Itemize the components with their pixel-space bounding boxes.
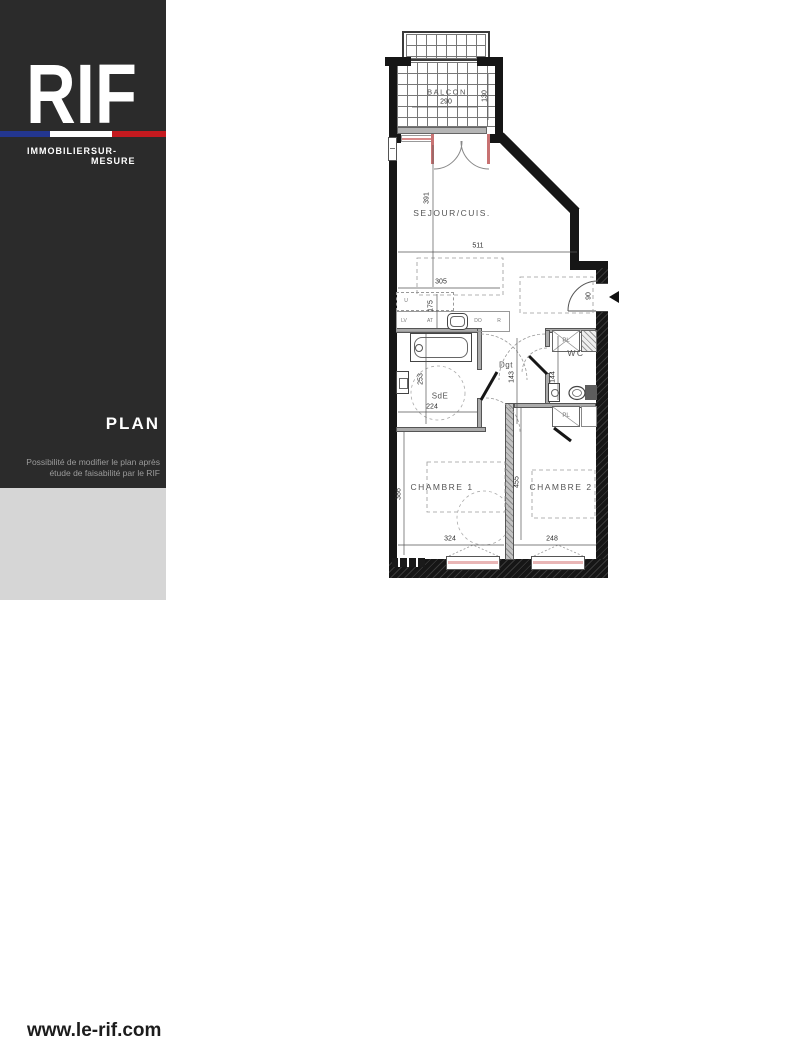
sink-basin [450, 316, 465, 327]
french-flag-stripe [0, 131, 166, 137]
door-leaf-chambre2 [554, 428, 571, 441]
flag-blue [0, 131, 50, 137]
room-label-wc: WC [567, 348, 584, 358]
dim-sde-h: 253 [418, 373, 425, 385]
sidebar: RIF IMMOBILIER SUR-MESURE PLAN Possibili… [0, 0, 166, 488]
website-url: www.le-rif.com [27, 1020, 161, 1042]
tagline-right: SUR-MESURE [91, 146, 140, 166]
flag-red [112, 131, 166, 137]
door-arc [461, 141, 489, 169]
wall-right [596, 312, 608, 578]
rif-logo: RIF [26, 52, 137, 136]
kitchen-label-0: U [404, 298, 408, 304]
dim-balcon-w: 290 [440, 99, 452, 106]
entrance-arrow-icon [609, 291, 619, 303]
window-opening-dashes [449, 545, 498, 556]
wall-diagonal [500, 136, 576, 212]
washbasin [396, 371, 409, 394]
tagline: IMMOBILIER SUR-MESURE [27, 146, 140, 166]
room-label-chambre1: CHAMBRE 1 [410, 482, 473, 492]
entrance-door-arc [568, 281, 598, 311]
room-label-balcon: BALCON [427, 88, 467, 97]
turning-circle-ch1 [457, 491, 511, 545]
room-label-sejour: SEJOUR/CUIS. [413, 208, 491, 218]
french-door-jamb [487, 134, 490, 164]
dim-sde-w: 224 [426, 404, 438, 411]
wall-dgt-wc [545, 330, 550, 347]
door-arc [434, 141, 462, 169]
wall-left [389, 130, 397, 578]
wall [389, 57, 397, 136]
dim-kitchen-d: 175 [428, 300, 435, 312]
wall [489, 134, 503, 143]
kitchen-label-4: R [497, 318, 501, 324]
tagline-left: IMMOBILIER [27, 146, 91, 166]
wall-right-upper [570, 208, 579, 266]
room-label-sde: SdE [432, 392, 449, 401]
balcony-door-sill [397, 127, 487, 134]
kitchen-sink [447, 313, 468, 330]
kitchen-label-2: AT [427, 318, 433, 324]
bathtub [410, 333, 472, 362]
furniture-entry [520, 277, 593, 313]
wall-sde-dgt [477, 328, 482, 370]
window-top-left [401, 135, 432, 142]
dim-ch1-h: 386 [396, 488, 403, 500]
french-door-jamb [431, 134, 434, 164]
door-arc-dashed [522, 348, 547, 373]
toilet-bowl [569, 387, 585, 400]
section-title: PLAN [106, 414, 160, 434]
wall [495, 57, 503, 136]
room-label-placard-top: PL [562, 338, 569, 344]
sidebar-footer: www.le-rif.com [0, 488, 166, 600]
dim-ch2-w: 248 [546, 536, 558, 543]
wall-right [596, 268, 608, 284]
door-arc-dashed [481, 334, 527, 380]
dim-balcon-d: 130 [482, 90, 489, 102]
dim-dgt-h: 143 [509, 371, 516, 383]
door-leaf-sde [481, 372, 497, 400]
dim-kitchen-w: 305 [435, 279, 447, 286]
room-label-chambre2: CHAMBRE 2 [529, 482, 592, 492]
flag-white [50, 131, 112, 137]
dim-ch2-h: 455 [514, 476, 521, 488]
room-label-placard-bottom: PL [562, 413, 569, 419]
door-leaf-wc [529, 356, 547, 374]
wc-basin-bowl [551, 389, 559, 397]
door-arc-dashed [499, 334, 545, 380]
radiator [392, 558, 425, 567]
window-chambre2 [531, 556, 585, 570]
entrance-opening [596, 283, 608, 312]
dim-wc-h: 144 [550, 371, 557, 383]
furniture-bed2 [532, 470, 595, 518]
closet-bottom-side [581, 406, 597, 427]
wc-basin [548, 383, 560, 402]
kitchen-label-3: DO [474, 318, 482, 324]
dim-sejour-w: 511 [472, 243, 483, 250]
washbasin-bowl [399, 378, 408, 389]
feasibility-note: Possibilité de modifier le plan après ét… [26, 457, 160, 479]
window-opening-dashes [534, 545, 583, 556]
dim-ch1-w: 324 [444, 536, 456, 543]
bathtub-faucet [415, 344, 423, 352]
kitchen-label-1: LV [401, 318, 407, 324]
furniture-table [417, 258, 503, 295]
room-label-dgt: Dgt [499, 361, 513, 370]
note-line2: étude de faisabilité par le RIF [49, 468, 160, 478]
note-line1: Possibilité de modifier le plan après [26, 457, 160, 467]
dim-entree-w: 90 [586, 292, 593, 300]
wall-sde-ch1 [396, 427, 486, 432]
window-chambre1 [446, 556, 500, 570]
balcony-tiles-upper [406, 34, 486, 59]
toilet-cistern [585, 385, 597, 400]
toilet-bowl-inner [573, 390, 582, 397]
dim-sejour-h: 391 [424, 192, 431, 204]
